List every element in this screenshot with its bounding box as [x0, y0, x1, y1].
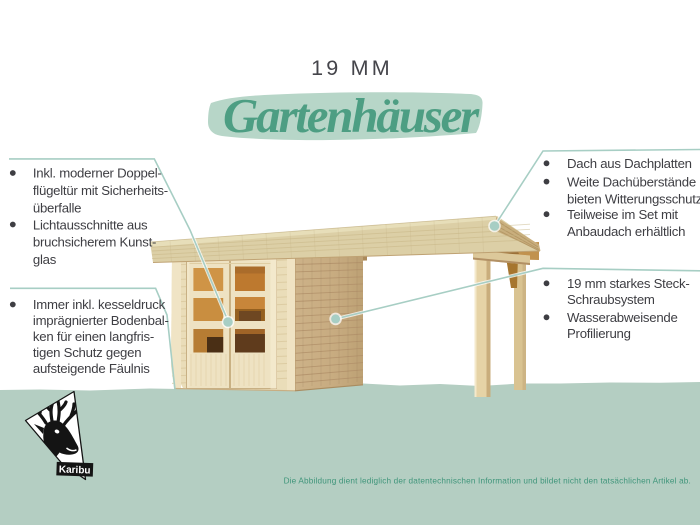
svg-text:ken für einen langfris-: ken für einen langfris- [33, 329, 154, 344]
svg-text:Gartenhäuser: Gartenhäuser [223, 88, 480, 143]
svg-text:Weite Dachüberstände: Weite Dachüberstände [567, 174, 696, 189]
svg-text:Inkl. moderner Doppel-: Inkl. moderner Doppel- [33, 166, 162, 181]
svg-text:Anbaudach erhältlich: Anbaudach erhältlich [567, 224, 685, 239]
svg-text:Die Abbildung dient lediglich: Die Abbildung dient lediglich der datent… [284, 477, 691, 486]
svg-text:19 MM: 19 MM [311, 56, 393, 80]
svg-text:Lichtausschnitte aus: Lichtausschnitte aus [33, 217, 148, 232]
svg-text:Karibu: Karibu [59, 464, 91, 476]
svg-text:überfalle: überfalle [33, 200, 81, 215]
svg-text:Schraubsystem: Schraubsystem [567, 292, 655, 307]
svg-text:Teilweise im Set mit: Teilweise im Set mit [567, 207, 678, 222]
svg-text:flügeltür mit Sicherheits-: flügeltür mit Sicherheits- [33, 183, 168, 198]
svg-text:bieten Witterungsschutz: bieten Witterungsschutz [567, 192, 700, 207]
svg-text:bruchsicherem Kunst-: bruchsicherem Kunst- [33, 235, 156, 250]
svg-text:glas: glas [33, 252, 57, 267]
svg-text:Wasserabweisende: Wasserabweisende [567, 310, 678, 325]
svg-text:tigen Schutz gegen: tigen Schutz gegen [33, 345, 141, 360]
svg-text:19 mm starkes Steck-: 19 mm starkes Steck- [567, 276, 690, 291]
svg-text:Profilierung: Profilierung [567, 326, 631, 341]
svg-text:aufsteigende Fäulnis: aufsteigende Fäulnis [33, 361, 150, 376]
svg-text:imprägnierter Bodenbal-: imprägnierter Bodenbal- [33, 313, 169, 328]
svg-text:Immer inkl. kesseldruck: Immer inkl. kesseldruck [33, 297, 166, 312]
svg-text:Dach aus Dachplatten: Dach aus Dachplatten [567, 156, 692, 171]
